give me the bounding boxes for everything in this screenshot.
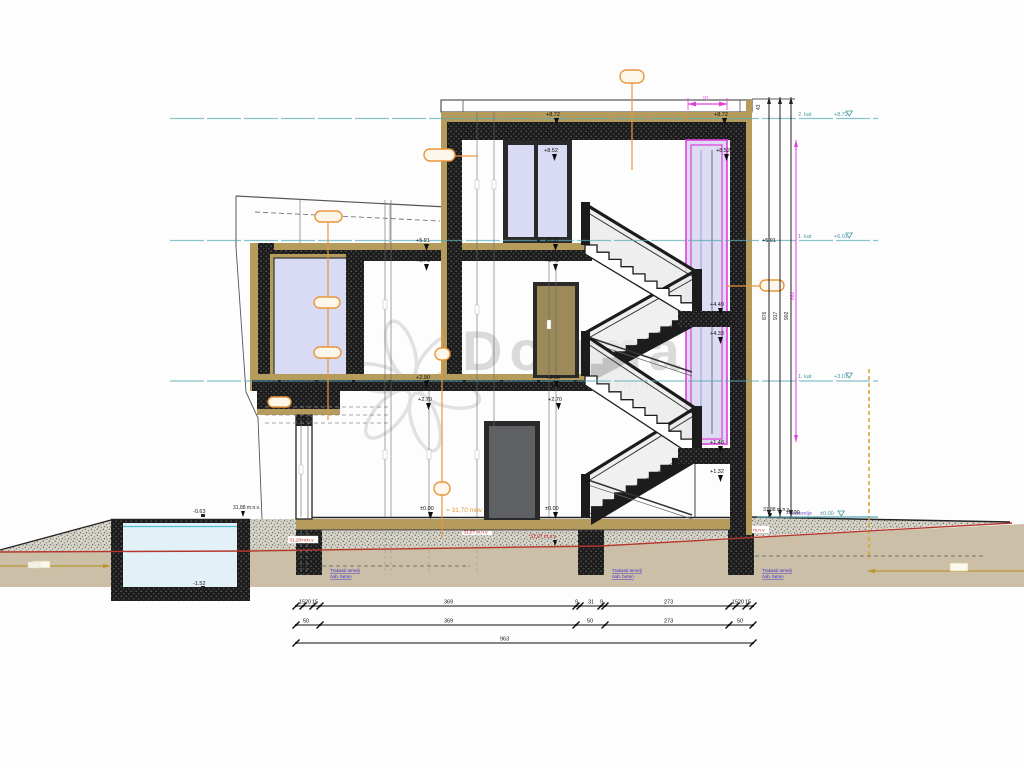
svg-text:Trakasti temelj: Trakasti temelj xyxy=(762,568,792,573)
svg-text:15: 15 xyxy=(312,600,318,606)
svg-text:273: 273 xyxy=(664,600,673,606)
svg-text:nab. beton: nab. beton xyxy=(330,574,352,579)
svg-text:43: 43 xyxy=(756,104,762,110)
svg-text:31,88 m.n.v.: 31,88 m.n.v. xyxy=(233,505,260,511)
svg-text:+6.02: +6.02 xyxy=(834,234,848,240)
svg-text:31,20 m.n.v: 31,20 m.n.v xyxy=(290,537,315,542)
svg-text:31: 31 xyxy=(588,600,594,606)
svg-text:+8.72: +8.72 xyxy=(546,112,560,118)
svg-text:50: 50 xyxy=(737,619,743,625)
svg-text:= 31,70 mnv: = 31,70 mnv xyxy=(446,507,483,514)
svg-text:+8.72: +8.72 xyxy=(714,112,728,118)
svg-text:20: 20 xyxy=(305,600,311,606)
svg-text:+4.33: +4.33 xyxy=(710,331,724,337)
svg-text:20: 20 xyxy=(738,600,744,606)
svg-text:±0.00: ±0.00 xyxy=(820,511,834,517)
svg-text:nab. beton: nab. beton xyxy=(612,574,634,579)
svg-text:50: 50 xyxy=(303,619,309,625)
svg-text:+8.72: +8.72 xyxy=(834,112,848,118)
svg-text:+2.70: +2.70 xyxy=(548,397,562,403)
svg-text:902: 902 xyxy=(784,311,790,320)
svg-text:9: 9 xyxy=(575,600,578,606)
svg-text:+5.71: +5.71 xyxy=(545,258,559,264)
svg-text:+8.52: +8.52 xyxy=(716,148,730,154)
svg-text:±0.00: ±0.00 xyxy=(786,510,800,516)
svg-text:917: 917 xyxy=(773,311,779,320)
svg-text:91: 91 xyxy=(703,96,709,102)
svg-text:+2.90: +2.90 xyxy=(546,375,560,381)
svg-text:1. kat: 1. kat xyxy=(798,374,812,380)
svg-text:15: 15 xyxy=(745,600,751,606)
svg-text:273: 273 xyxy=(664,619,673,625)
svg-text:+5.71: +5.71 xyxy=(416,258,430,264)
svg-text:+5.91: +5.91 xyxy=(416,238,430,244)
svg-text:862: 862 xyxy=(790,291,796,300)
svg-text:+5.91: +5.91 xyxy=(545,238,559,244)
svg-text:+1.32: +1.32 xyxy=(710,469,724,475)
svg-text:±0.00: ±0.00 xyxy=(545,506,559,512)
svg-text:1. kat: 1. kat xyxy=(798,234,812,240)
svg-text:nab. beton: nab. beton xyxy=(762,574,784,579)
svg-text:876: 876 xyxy=(762,311,768,320)
svg-text:369: 369 xyxy=(444,619,453,625)
svg-text:±0.00: ±0.00 xyxy=(420,506,434,512)
svg-text:369: 369 xyxy=(444,600,453,606)
svg-text:Trakasti temelj: Trakasti temelj xyxy=(330,568,360,573)
svg-text:2. kat: 2. kat xyxy=(798,112,812,118)
svg-text:+8.52: +8.52 xyxy=(544,148,558,154)
svg-text:+4.49: +4.49 xyxy=(710,302,724,308)
svg-text:+3.01: +3.01 xyxy=(834,374,848,380)
svg-text:+2.70: +2.70 xyxy=(418,397,432,403)
svg-text:+2.90: +2.90 xyxy=(416,375,430,381)
svg-text:Trakasti temelj: Trakasti temelj xyxy=(612,568,642,573)
svg-text:+1.48: +1.48 xyxy=(710,440,724,446)
svg-text:31,07 m.n.v: 31,07 m.n.v xyxy=(530,534,557,540)
svg-text:50: 50 xyxy=(587,619,593,625)
svg-text:963: 963 xyxy=(500,637,509,643)
svg-text:9: 9 xyxy=(600,600,603,606)
